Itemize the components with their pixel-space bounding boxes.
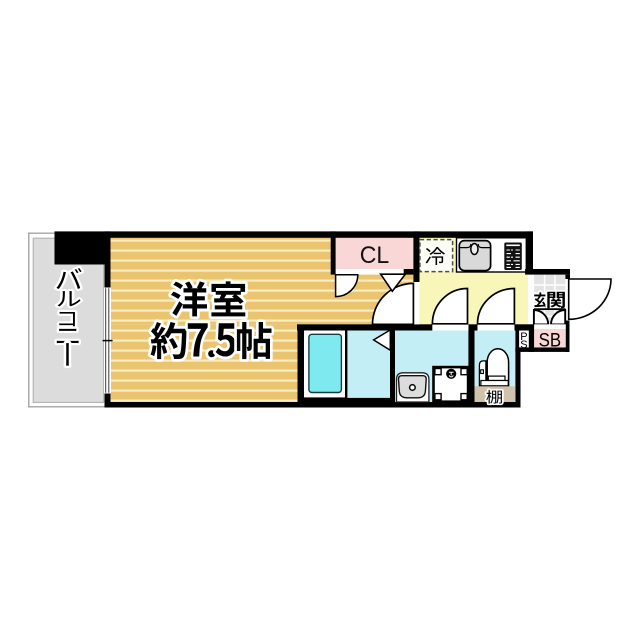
svg-text:S: S	[520, 339, 527, 351]
svg-text:SB: SB	[539, 331, 562, 352]
svg-text:CL: CL	[360, 243, 390, 269]
